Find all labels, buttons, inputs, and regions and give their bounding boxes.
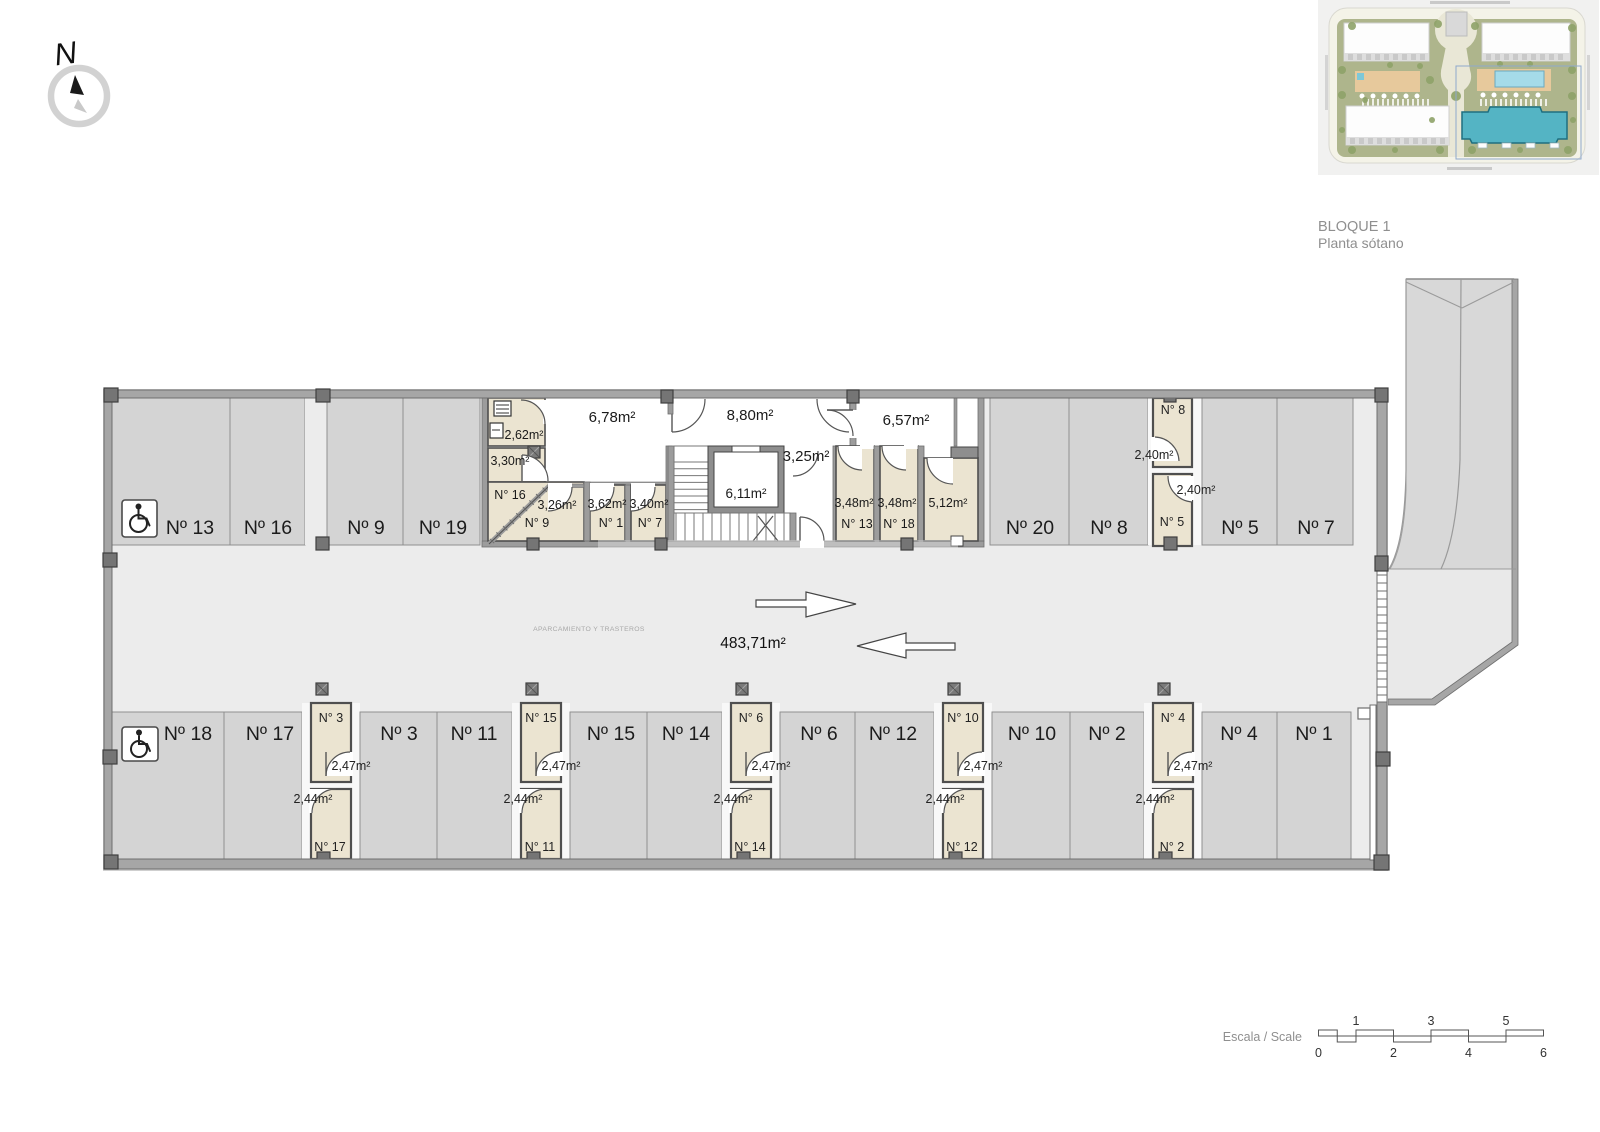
svg-text:2,44m²: 2,44m² — [926, 792, 965, 806]
svg-text:Nº 3: Nº 3 — [380, 723, 417, 745]
svg-text:2,44m²: 2,44m² — [714, 792, 753, 806]
svg-text:Nº 12: Nº 12 — [869, 723, 917, 745]
svg-text:N° 10: N° 10 — [947, 711, 978, 725]
svg-text:1: 1 — [1353, 1014, 1360, 1028]
svg-text:Nº 6: Nº 6 — [800, 723, 837, 745]
svg-text:N° 18: N° 18 — [883, 517, 914, 531]
svg-text:2,47m²: 2,47m² — [332, 759, 371, 773]
svg-text:2,40m²: 2,40m² — [1135, 448, 1174, 462]
svg-text:Nº 4: Nº 4 — [1220, 723, 1258, 745]
svg-text:N° 3: N° 3 — [319, 711, 343, 725]
svg-text:N° 13: N° 13 — [841, 517, 872, 531]
svg-text:Nº 15: Nº 15 — [587, 723, 635, 745]
svg-text:3,40m²: 3,40m² — [630, 497, 669, 511]
svg-text:6,78m²: 6,78m² — [589, 409, 636, 426]
svg-text:Nº 11: Nº 11 — [451, 723, 498, 745]
svg-text:Nº 18: Nº 18 — [164, 723, 212, 745]
svg-text:2,44m²: 2,44m² — [504, 792, 543, 806]
svg-text:Nº 9: Nº 9 — [347, 517, 384, 539]
svg-text:Nº 7: Nº 7 — [1297, 517, 1334, 539]
svg-text:Nº 16: Nº 16 — [244, 517, 292, 539]
svg-text:Nº 5: Nº 5 — [1221, 517, 1259, 539]
svg-text:N° 6: N° 6 — [739, 711, 763, 725]
svg-text:N° 5: N° 5 — [1160, 515, 1184, 529]
svg-text:3: 3 — [1428, 1014, 1435, 1028]
svg-text:BLOQUE 1: BLOQUE 1 — [1318, 219, 1391, 235]
svg-text:Nº 19: Nº 19 — [419, 517, 467, 539]
svg-text:3,30m²: 3,30m² — [491, 454, 530, 468]
svg-text:Nº 8: Nº 8 — [1090, 517, 1127, 539]
svg-text:2,62m²: 2,62m² — [505, 428, 544, 442]
svg-text:Nº 2: Nº 2 — [1088, 723, 1125, 745]
svg-text:3,26m²: 3,26m² — [538, 498, 577, 512]
svg-text:3,62m²: 3,62m² — [588, 497, 627, 511]
svg-text:Nº 20: Nº 20 — [1006, 517, 1054, 539]
svg-text:N° 7: N° 7 — [638, 516, 662, 530]
svg-text:3,48m²: 3,48m² — [835, 496, 874, 510]
svg-text:Nº 1: Nº 1 — [1295, 723, 1332, 745]
svg-text:N° 16: N° 16 — [494, 488, 525, 502]
svg-text:N° 15: N° 15 — [525, 711, 556, 725]
svg-text:2,47m²: 2,47m² — [1174, 759, 1213, 773]
svg-text:2,47m²: 2,47m² — [752, 759, 791, 773]
svg-text:3,25m²: 3,25m² — [783, 448, 830, 465]
svg-text:483,71m²: 483,71m² — [720, 635, 785, 652]
svg-text:2,44m²: 2,44m² — [1136, 792, 1175, 806]
svg-text:APARCAMIENTO Y TRASTEROS: APARCAMIENTO Y TRASTEROS — [533, 626, 645, 633]
svg-text:4: 4 — [1465, 1046, 1472, 1060]
svg-text:Escala / Scale: Escala / Scale — [1223, 1030, 1302, 1044]
svg-text:5: 5 — [1503, 1014, 1510, 1028]
svg-text:6,57m²: 6,57m² — [883, 412, 930, 429]
svg-text:N° 9: N° 9 — [525, 516, 549, 530]
svg-text:Nº 14: Nº 14 — [662, 723, 710, 745]
svg-text:2,44m²: 2,44m² — [294, 792, 333, 806]
svg-text:N° 1: N° 1 — [599, 516, 623, 530]
svg-text:2,40m²: 2,40m² — [1177, 483, 1216, 497]
svg-text:0: 0 — [1315, 1046, 1322, 1060]
svg-text:2,47m²: 2,47m² — [964, 759, 1003, 773]
svg-text:N° 4: N° 4 — [1161, 711, 1185, 725]
svg-text:Nº 17: Nº 17 — [246, 723, 294, 745]
svg-text:Planta sótano: Planta sótano — [1318, 235, 1404, 251]
svg-text:2: 2 — [1390, 1046, 1397, 1060]
svg-text:6: 6 — [1540, 1046, 1547, 1060]
svg-text:8,80m²: 8,80m² — [727, 407, 774, 424]
svg-text:Nº 13: Nº 13 — [166, 517, 214, 539]
svg-text:6,11m²: 6,11m² — [725, 486, 767, 501]
svg-text:2,47m²: 2,47m² — [542, 759, 581, 773]
svg-text:Nº 10: Nº 10 — [1008, 723, 1056, 745]
svg-text:5,12m²: 5,12m² — [929, 496, 968, 510]
svg-text:N° 8: N° 8 — [1161, 403, 1185, 417]
svg-text:3,48m²: 3,48m² — [878, 496, 917, 510]
